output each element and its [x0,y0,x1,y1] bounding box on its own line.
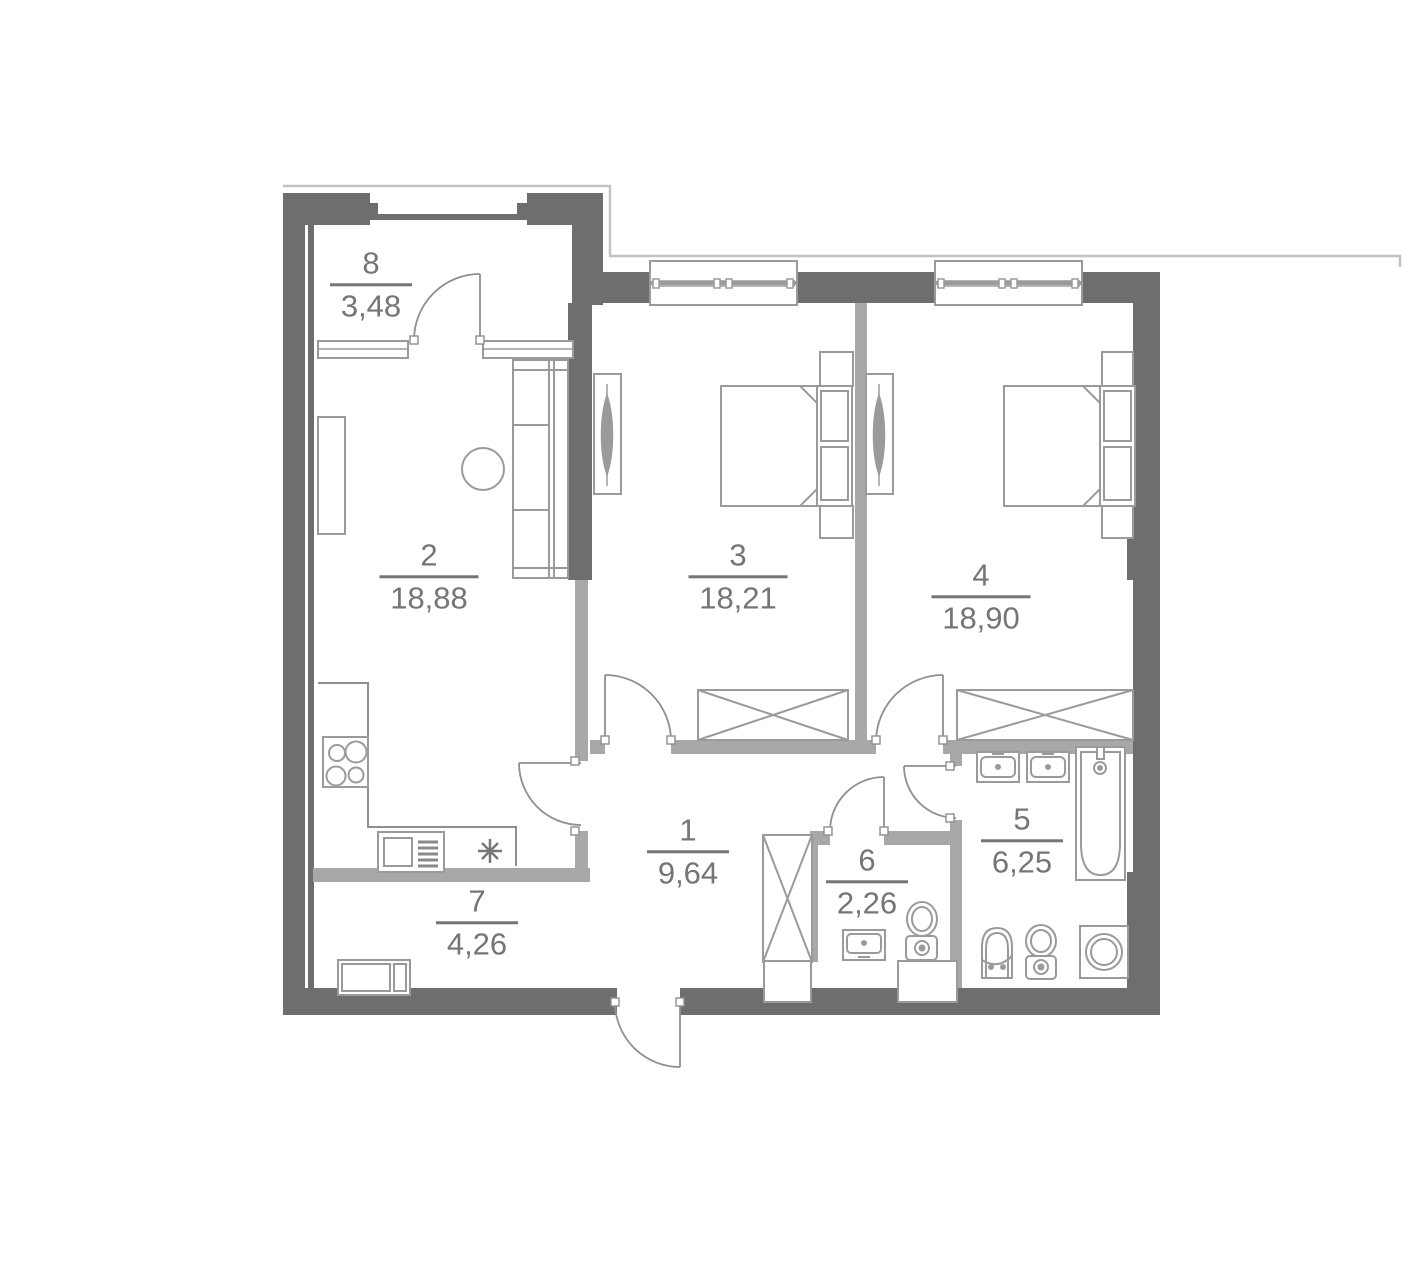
balcony-glazing-end-left [366,203,378,220]
wardrobe-hall [763,835,812,962]
door-room4 [876,675,943,740]
tv-stand [318,417,345,534]
room-area: 2,26 [826,886,908,921]
bathroom-toilet [1026,925,1056,979]
balcony-glazing-line [368,214,528,220]
bed-room4 [1004,386,1135,506]
door-wc [830,777,884,831]
room-5-label: 5 6,25 [981,802,1063,879]
room-area: 18,88 [380,581,479,616]
room-1-label: 1 9,64 [647,813,729,890]
label-divider [647,850,729,853]
room-area: 18,90 [932,601,1031,636]
wc-washbasin [843,930,885,960]
wall-bottom-left [283,988,617,1015]
label-divider [380,575,479,578]
room-3-label: 3 18,21 [689,538,788,615]
door-kitchen-hall [519,763,581,825]
radiator-room4 [866,374,893,494]
wall-right [1133,272,1160,1015]
room-number: 7 [436,884,518,919]
label-divider [932,595,1031,598]
room-number: 6 [826,843,908,878]
room-area: 6,25 [981,845,1063,880]
nightstand-room3-top [820,352,853,386]
wall-balcony-top-left [283,193,370,225]
window-balcony-left [318,341,408,358]
stove [323,737,368,787]
partition-livingroom-hall-upper [575,580,588,761]
coffee-table [462,448,504,490]
entry-bench [338,960,410,995]
sink-symbol [478,839,502,863]
wall-niche-right [898,961,957,1002]
bathtub [1076,747,1125,880]
room-area: 3,48 [330,289,412,324]
room-number: 5 [981,802,1063,837]
bidet [982,928,1012,978]
partition-hall-top-b [671,740,876,754]
room-area: 4,26 [436,927,518,962]
room-4-label: 4 18,90 [932,558,1031,635]
door-bathroom [904,766,956,818]
room-number: 4 [932,558,1031,593]
wall-left-inner-line [308,225,314,1003]
radiator-room3 [594,374,621,494]
label-divider [330,283,412,286]
label-divider [981,839,1063,842]
room-number: 3 [689,538,788,573]
door-room3 [605,675,671,740]
balcony-glazing-end-right [517,203,529,220]
partition-kitchen-corridor [313,868,590,882]
window-room4 [935,261,1082,305]
floor-plan: 1 9,64 2 18,88 3 18,21 4 18,90 5 6,25 6 … [0,0,1418,1261]
partition-room3-room4 [855,303,867,740]
nightstand-room4-bottom [1102,506,1133,538]
wc-toilet [906,902,937,960]
bathroom-sink-2 [1027,752,1069,782]
label-divider [436,921,518,924]
wall-niche-left [764,961,811,1002]
floor-plan-drawing [0,0,1418,1261]
window-balcony-right [483,341,573,358]
bathroom-sink-1 [977,752,1019,782]
room-area: 18,21 [689,581,788,616]
bed-room3 [721,386,852,506]
door-entrance [615,1002,680,1067]
nightstand-room4-top [1102,352,1133,386]
wardrobe-room3 [698,690,848,740]
window-room3 [650,261,797,305]
wall-balcony-top-right [527,193,603,225]
kitchen-sink-unit [378,832,444,872]
building-outline [283,186,1400,267]
door-balcony [414,274,480,340]
label-divider [689,575,788,578]
wardrobe-room4 [957,690,1133,740]
sofa [513,360,568,578]
label-divider [826,880,908,883]
room-6-label: 6 2,26 [826,843,908,920]
room-number: 2 [380,538,479,573]
room-7-label: 7 4,26 [436,884,518,961]
washing-machine [1080,926,1128,978]
windows [318,261,1082,358]
wall-left [283,193,305,1015]
nightstand-room3-bottom [820,506,853,538]
room-8-label: 8 3,48 [330,246,412,323]
room-number: 1 [647,813,729,848]
room-2-label: 2 18,88 [380,538,479,615]
room-number: 8 [330,246,412,281]
room-area: 9,64 [647,856,729,891]
